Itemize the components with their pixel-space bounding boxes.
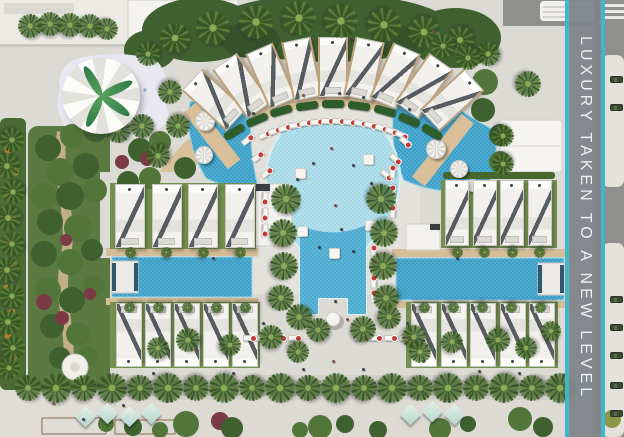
promenade-canopy <box>422 401 443 422</box>
palm-tree <box>294 374 322 402</box>
palm-tree <box>433 373 464 404</box>
person <box>302 94 305 97</box>
person <box>362 96 365 99</box>
person <box>302 368 305 371</box>
palm-tree <box>132 38 164 70</box>
palm-tree <box>511 67 544 100</box>
person <box>352 250 355 253</box>
lounger <box>398 136 412 149</box>
promenade-canopy <box>400 404 421 425</box>
person <box>362 368 365 371</box>
parked-car <box>610 410 623 417</box>
person <box>232 372 235 375</box>
palm-tree <box>533 246 545 258</box>
parked-car <box>610 324 623 331</box>
banner: LUXURY TAKEN TO A NEW LEVEL <box>565 0 605 437</box>
cabana <box>115 184 145 248</box>
person <box>406 322 409 325</box>
floating-daybed <box>363 154 374 165</box>
palm-tree <box>0 253 24 286</box>
person <box>82 418 85 421</box>
person <box>330 147 333 150</box>
parked-car <box>610 296 623 303</box>
palm-tree <box>162 110 194 142</box>
palm-tree <box>0 200 26 236</box>
floating-daybed <box>297 226 308 237</box>
floating-daybed <box>329 248 340 259</box>
banner-text: LUXURY TAKEN TO A NEW LEVEL <box>577 36 593 400</box>
lounger <box>243 335 256 341</box>
palm-tree <box>160 23 190 53</box>
shade-sail <box>62 58 140 134</box>
person <box>334 300 337 303</box>
palm-tree <box>151 371 185 405</box>
palm-tree <box>478 246 491 259</box>
lounger <box>262 224 268 237</box>
person <box>122 404 125 407</box>
palm-tree <box>286 340 311 365</box>
palm-tree <box>305 317 330 342</box>
palm-tree <box>488 149 519 180</box>
palm-tree <box>237 373 268 404</box>
palm-tree <box>95 371 128 404</box>
person <box>456 257 459 260</box>
palm-tree <box>154 76 186 108</box>
palm-tree <box>489 122 517 150</box>
person <box>252 112 255 115</box>
person <box>262 322 265 325</box>
palm-tree <box>366 7 403 44</box>
lounger <box>262 208 268 221</box>
cabana <box>473 180 497 246</box>
palm-tree <box>0 279 29 312</box>
lounger <box>250 151 264 164</box>
sail-petal <box>83 94 106 129</box>
person <box>352 164 355 167</box>
person <box>340 228 343 231</box>
promenade-canopy <box>97 403 118 424</box>
lounger <box>388 153 402 166</box>
palm-tree <box>267 249 301 283</box>
palm-tree <box>0 229 27 259</box>
palm-tree <box>12 372 44 404</box>
resort-aerial-rendering: LUXURY TAKEN TO A NEW LEVEL <box>0 0 624 437</box>
promenade-canopy <box>75 406 96 427</box>
palm-tree <box>254 320 288 354</box>
hedge-block <box>348 100 371 111</box>
person <box>332 360 335 363</box>
cabana <box>152 184 182 248</box>
daybed-pod <box>450 160 468 178</box>
palm-tree <box>347 371 380 404</box>
hedge-block <box>296 100 319 111</box>
palm-tree <box>0 308 22 336</box>
palm-tree <box>277 0 321 40</box>
sail-petal <box>99 92 132 119</box>
palm-tree <box>373 369 410 406</box>
parked-car <box>610 76 623 83</box>
palm-tree <box>240 302 251 313</box>
person <box>338 92 341 95</box>
palm-tree <box>0 148 25 184</box>
lounger <box>259 167 273 180</box>
palm-tree <box>265 215 302 252</box>
cabana <box>445 180 469 246</box>
lounger <box>240 134 254 147</box>
palm-tree <box>1 180 25 204</box>
person <box>296 178 299 181</box>
parked-car <box>610 352 623 359</box>
palm-tree <box>534 301 546 313</box>
cabana <box>188 184 218 248</box>
daybed-pod <box>195 146 213 164</box>
palm-tree <box>235 1 277 43</box>
palm-tree <box>144 142 171 169</box>
person <box>346 318 349 321</box>
person <box>518 372 521 375</box>
palm-tree <box>504 244 520 260</box>
person <box>52 402 55 405</box>
person <box>478 370 481 373</box>
daybed-pod <box>426 139 446 159</box>
lounger <box>384 335 397 341</box>
palm-tree <box>456 46 481 71</box>
parked-car <box>610 382 623 389</box>
promenade-canopy <box>141 403 162 424</box>
lounger <box>262 192 268 205</box>
promenade-canopy <box>119 406 140 427</box>
person <box>432 30 435 33</box>
person <box>350 38 353 41</box>
person <box>312 162 315 165</box>
lounger <box>389 166 395 179</box>
person <box>212 257 215 260</box>
person <box>334 204 337 207</box>
cabana <box>528 180 552 246</box>
palm-tree <box>486 370 523 407</box>
hedge-block <box>322 100 344 108</box>
palm-tree <box>124 246 136 258</box>
person <box>318 246 321 249</box>
person <box>370 182 373 185</box>
palm-tree <box>189 4 237 52</box>
cabana <box>500 180 524 246</box>
palm-tree <box>0 125 27 154</box>
palm-tree <box>266 179 307 220</box>
person <box>152 372 155 375</box>
promenade-canopy <box>444 404 465 425</box>
cabana <box>225 184 255 248</box>
person <box>408 108 411 111</box>
parked-car <box>610 104 623 111</box>
